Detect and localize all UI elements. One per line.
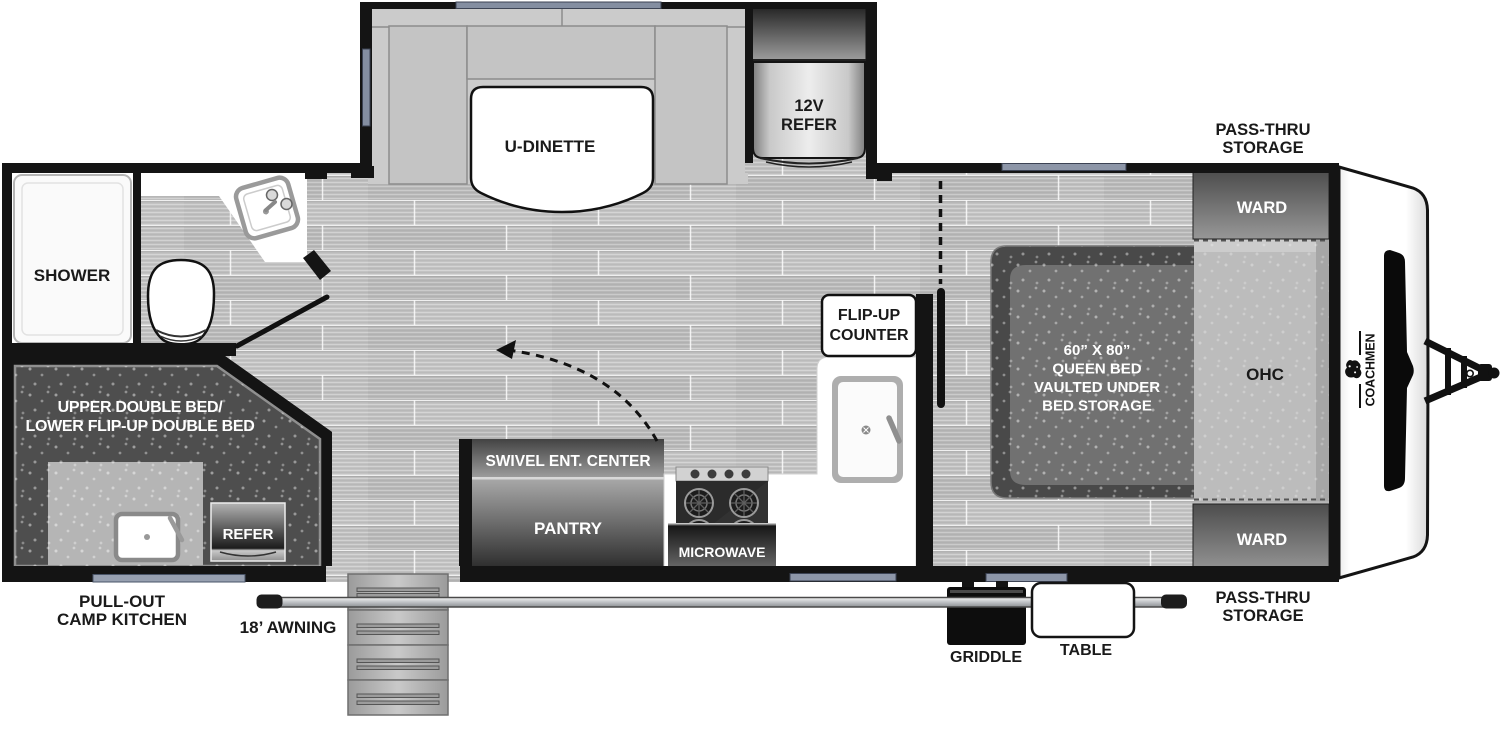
svg-text:REFER: REFER (223, 526, 274, 543)
svg-text:LOWER FLIP-UP DOUBLE BED: LOWER FLIP-UP DOUBLE BED (26, 418, 255, 435)
svg-text:PASS-THRU: PASS-THRU (1215, 589, 1310, 607)
svg-text:WARD: WARD (1237, 531, 1287, 549)
svg-text:STORAGE: STORAGE (1222, 607, 1303, 625)
svg-text:WARD: WARD (1237, 199, 1287, 217)
svg-text:COUNTER: COUNTER (829, 327, 909, 344)
svg-text:VAULTED UNDER: VAULTED UNDER (1034, 379, 1160, 396)
svg-text:BED STORAGE: BED STORAGE (1042, 398, 1152, 415)
svg-text:TABLE: TABLE (1060, 642, 1112, 659)
svg-text:SHOWER: SHOWER (34, 266, 111, 285)
svg-text:U-DINETTE: U-DINETTE (505, 137, 596, 156)
svg-text:18’ AWNING: 18’ AWNING (240, 618, 337, 637)
svg-text:MICROWAVE: MICROWAVE (679, 544, 766, 560)
svg-text:QUEEN BED: QUEEN BED (1052, 361, 1141, 378)
svg-text:FLIP-UP: FLIP-UP (838, 307, 901, 324)
svg-text:PASS-THRU: PASS-THRU (1215, 121, 1310, 139)
svg-text:GRIDDLE: GRIDDLE (950, 649, 1022, 666)
svg-text:PULL-OUT: PULL-OUT (79, 592, 166, 611)
svg-text:SWIVEL ENT. CENTER: SWIVEL ENT. CENTER (485, 453, 650, 470)
svg-text:OHC: OHC (1246, 365, 1284, 384)
svg-text:PANTRY: PANTRY (534, 519, 603, 538)
svg-text:STORAGE: STORAGE (1222, 139, 1303, 157)
svg-text:UPPER DOUBLE BED/: UPPER DOUBLE BED/ (58, 399, 224, 416)
svg-text:12V: 12V (794, 97, 823, 115)
svg-text:REFER: REFER (781, 116, 837, 134)
svg-text:60” X 80”: 60” X 80” (1064, 342, 1131, 359)
svg-text:CAMP KITCHEN: CAMP KITCHEN (57, 610, 187, 629)
svg-text:COACHMEN: COACHMEN (1364, 334, 1378, 407)
